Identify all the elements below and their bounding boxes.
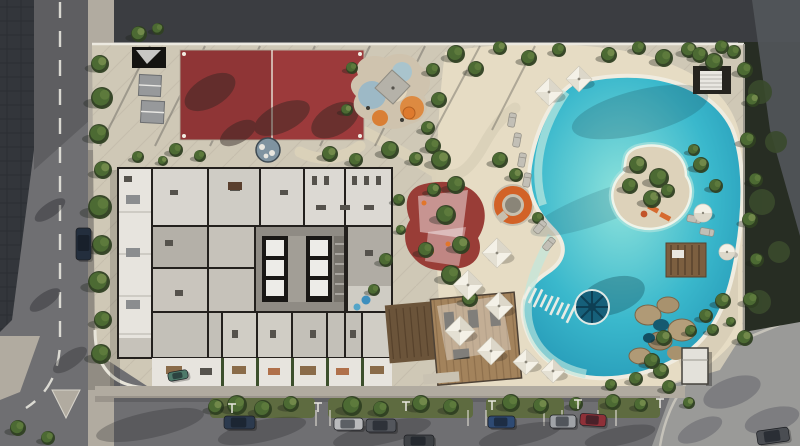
seating-circle [256, 138, 280, 162]
parked-car [550, 415, 578, 430]
shade-canopy [132, 47, 166, 68]
parked-car [366, 419, 398, 434]
parked-car [76, 228, 93, 262]
stairwell [334, 236, 345, 302]
building-floorplan [110, 168, 392, 390]
west-road [26, 0, 91, 446]
site-plan-svg [0, 0, 800, 446]
parked-car [488, 416, 517, 430]
playground [351, 54, 430, 129]
wheel-lounge [575, 290, 609, 324]
play-dome [403, 107, 415, 119]
red-play-pad [405, 182, 485, 271]
kiosk [682, 348, 712, 386]
sports-court [178, 50, 365, 152]
parked-car [404, 435, 436, 446]
dining-table [228, 182, 242, 190]
parked-car [224, 416, 257, 431]
firepit-lounge [492, 184, 534, 226]
rendered-aerial-image [0, 0, 800, 446]
pool-pergola [666, 243, 706, 277]
back-alley [0, 0, 800, 42]
parked-car [334, 418, 365, 432]
parked-car [579, 413, 608, 429]
